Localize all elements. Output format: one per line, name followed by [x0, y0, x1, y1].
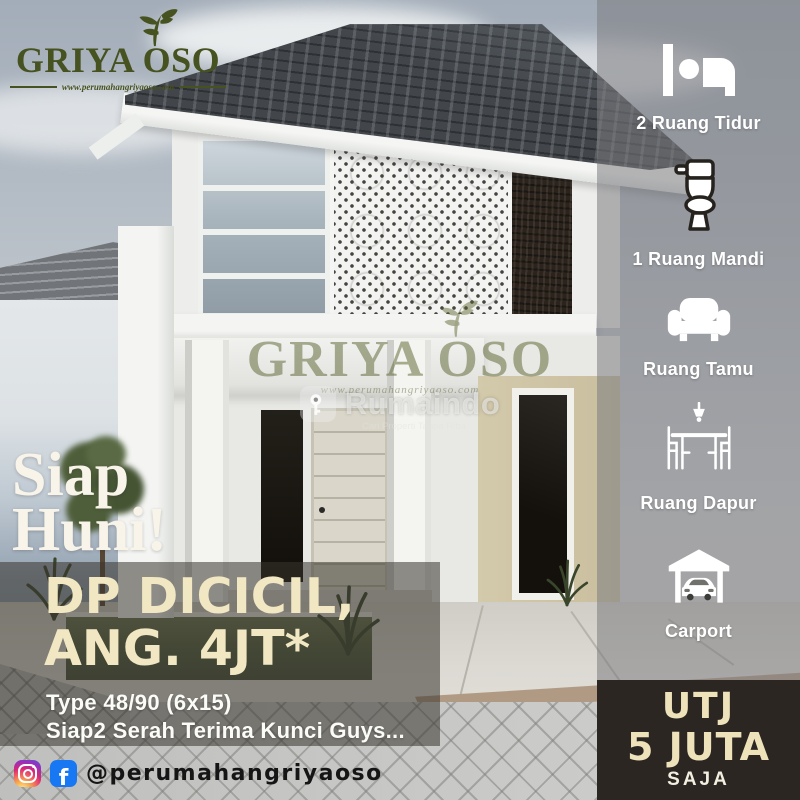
- shrub: [545, 550, 589, 610]
- door-handle: [319, 507, 325, 513]
- offer-type-spec: Type 48/90 (6x15): [46, 690, 232, 716]
- brand-name: GRIYA OSO: [10, 42, 226, 78]
- feature-label: Ruang Dapur: [640, 493, 756, 514]
- feature-label: 2 Ruang Tidur: [636, 113, 761, 134]
- social-bar: f @perumahangriyaoso: [14, 760, 383, 787]
- offer-line2: ANG. 4JT*: [44, 624, 310, 673]
- feature-label: Carport: [665, 621, 732, 642]
- headline-line2: Huni!: [12, 503, 167, 558]
- social-handle[interactable]: @perumahangriyaoso: [86, 761, 383, 786]
- bed-icon: [659, 42, 739, 103]
- price-box: UTJ 5 JUTA SAJA: [597, 680, 800, 800]
- sofa-icon: [666, 296, 732, 349]
- brand-logo: GRIYA OSO www.perumahangriyaoso.com: [10, 6, 226, 92]
- window-mullion: [201, 273, 327, 279]
- feature-label: 1 Ruang Mandi: [633, 249, 765, 270]
- headline-line1: Siap: [12, 448, 167, 503]
- watermark-partner-tagline: Cari Properti Tanpa Riba: [362, 421, 466, 432]
- door-sidelight: [261, 410, 303, 582]
- dining-table-icon: [661, 402, 737, 483]
- property-flyer: GRIYA OSO www.perumahangriyaoso.com Ruma…: [0, 0, 800, 800]
- toilet-icon: [673, 158, 725, 239]
- price-line3: SAJA: [667, 769, 730, 791]
- instagram-icon[interactable]: [14, 760, 41, 787]
- offer-line1: DP DICICIL,: [44, 572, 355, 621]
- feature-carport: Carport: [597, 546, 800, 642]
- price-line2: 5 JUTA: [627, 728, 770, 766]
- window-mullion: [201, 229, 327, 235]
- feature-label: Ruang Tamu: [643, 359, 754, 380]
- feature-bedrooms: 2 Ruang Tidur: [597, 42, 800, 134]
- key-icon: [300, 386, 336, 422]
- price-line1: UTJ: [662, 689, 735, 725]
- second-floor-window: [198, 136, 330, 318]
- feature-living-room: Ruang Tamu: [597, 296, 800, 380]
- window-mullion: [201, 185, 327, 191]
- carport-icon: [666, 546, 732, 611]
- watermark-partner-name: Rumaindo: [345, 386, 501, 422]
- brand-website: www.perumahangriyaoso.com: [10, 82, 226, 92]
- feature-bathrooms: 1 Ruang Mandi: [597, 158, 800, 270]
- facebook-icon[interactable]: f: [50, 760, 77, 787]
- feature-kitchen: Ruang Dapur: [597, 402, 800, 514]
- offer-note: Siap2 Serah Terima Kunci Guys...: [46, 718, 405, 744]
- headline: Siap Huni!: [12, 448, 167, 557]
- leaf-icon: [128, 8, 180, 48]
